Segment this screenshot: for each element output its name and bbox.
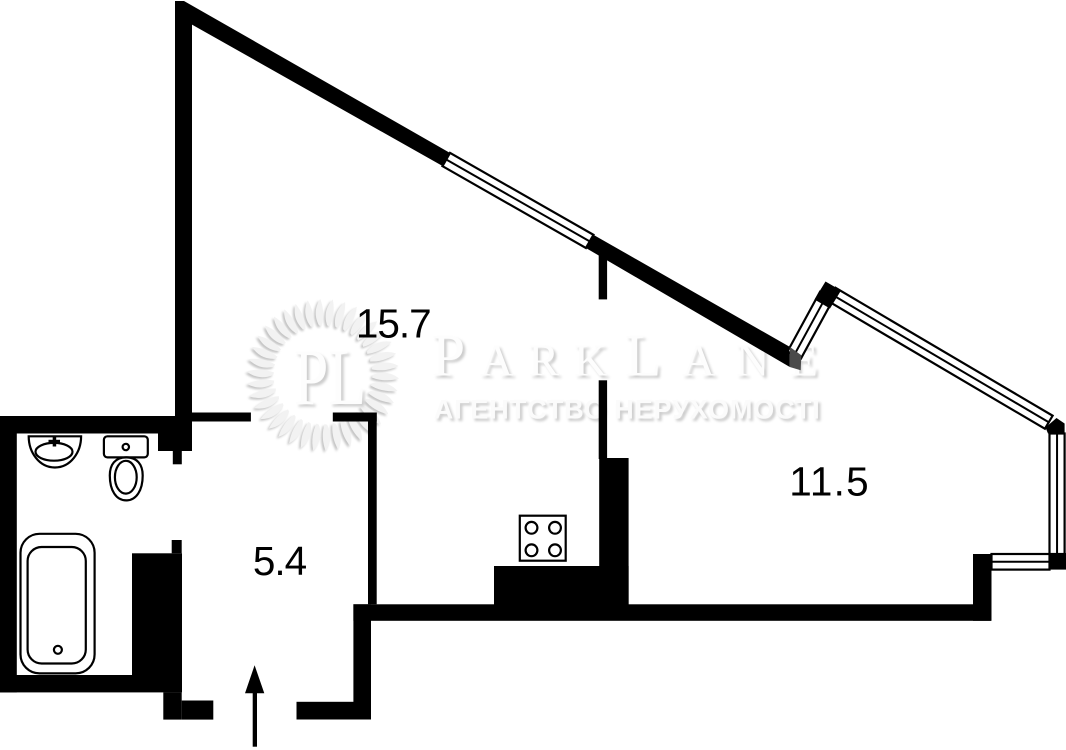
svg-text:15.7: 15.7	[356, 300, 431, 346]
svg-text:АГЕНТСТВО НЕРУХОМОСТІ: АГЕНТСТВО НЕРУХОМОСТІ	[434, 395, 820, 425]
svg-text:5.4: 5.4	[253, 538, 307, 584]
svg-text:11.5: 11.5	[789, 458, 870, 504]
svg-text:PL: PL	[294, 334, 366, 422]
